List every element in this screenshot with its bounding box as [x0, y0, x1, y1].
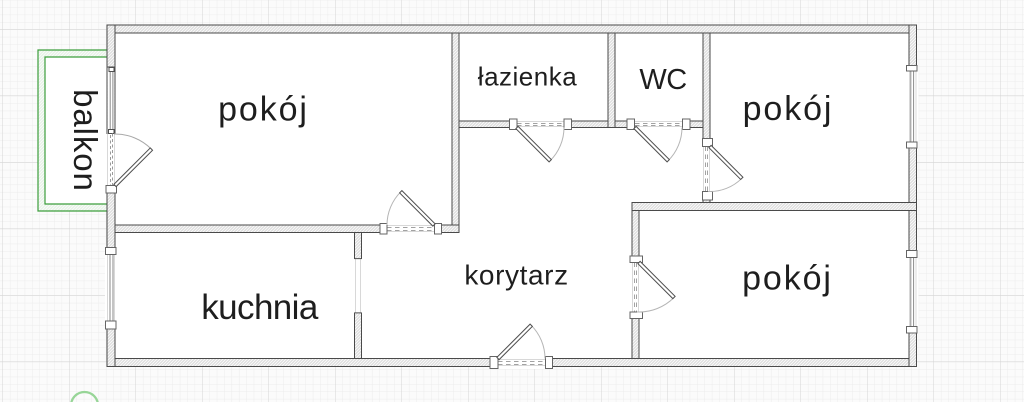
svg-text:pokój: pokój [218, 91, 309, 129]
svg-text:kuchnia: kuchnia [201, 288, 319, 327]
svg-text:pokój: pokój [742, 260, 833, 298]
svg-text:balkon: balkon [67, 89, 104, 192]
svg-text:łazienka: łazienka [478, 62, 577, 92]
svg-text:korytarz: korytarz [464, 260, 568, 291]
svg-text:pokój: pokój [743, 90, 834, 128]
svg-text:WC: WC [639, 64, 686, 96]
